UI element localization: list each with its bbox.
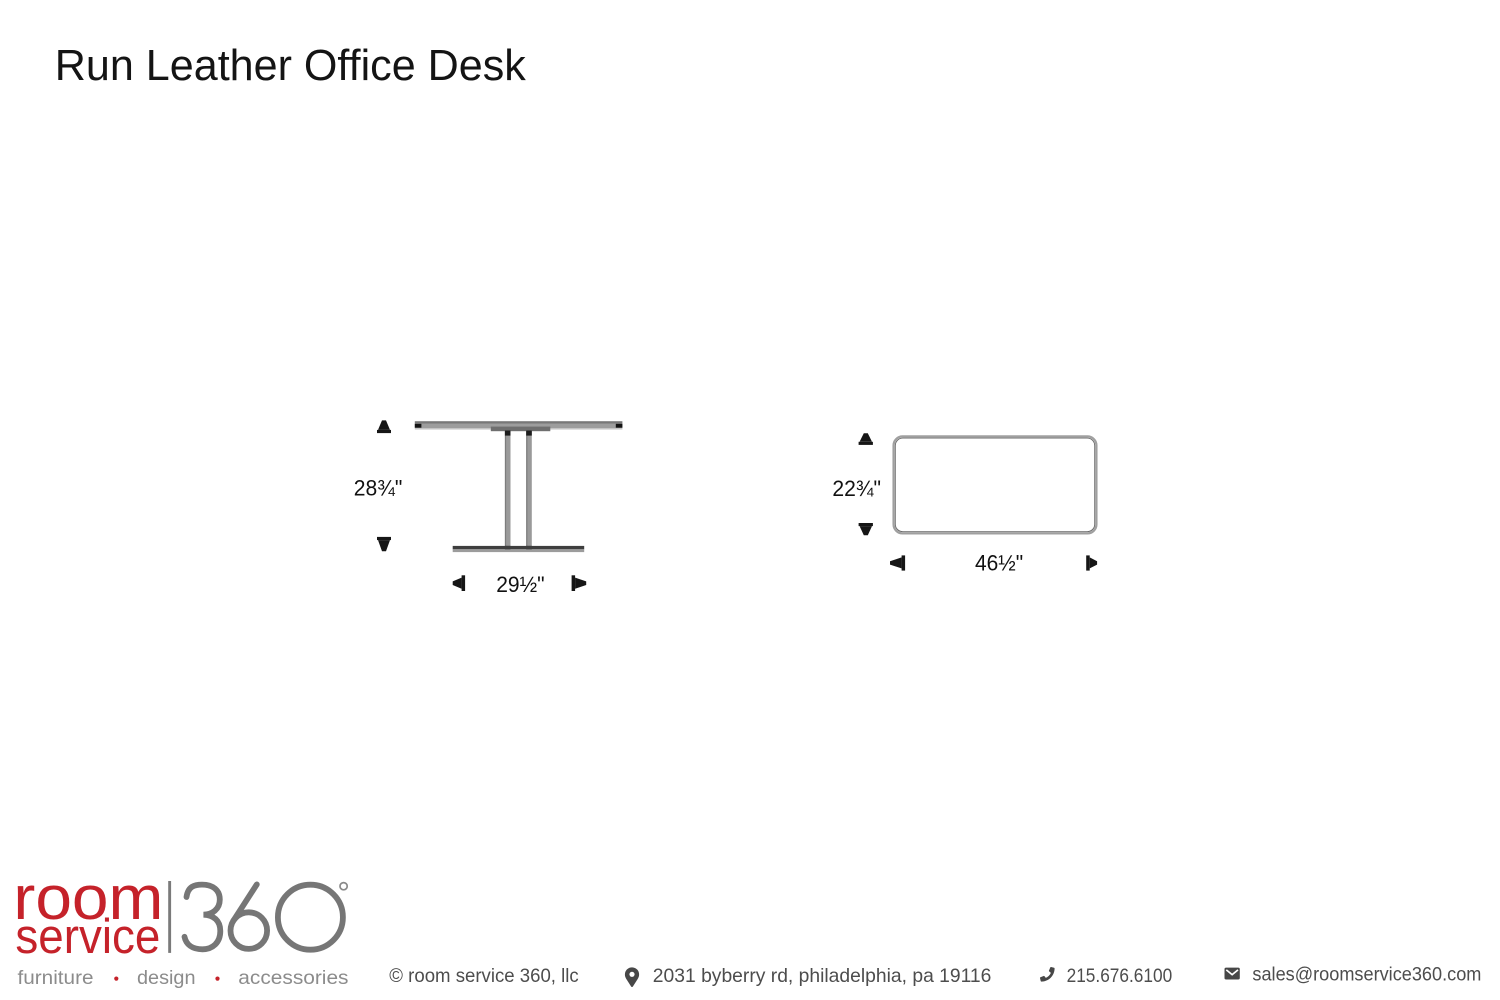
svg-text:furniture: furniture (18, 968, 94, 989)
svg-text:215.676.6100: 215.676.6100 (1067, 965, 1173, 987)
svg-text:22¾": 22¾" (832, 476, 881, 501)
svg-text:service: service (15, 909, 160, 964)
svg-text:design: design (137, 968, 196, 989)
svg-text:sales@roomservice360.com: sales@roomservice360.com (1252, 964, 1481, 986)
svg-text:Run Leather Office Desk: Run Leather Office Desk (55, 41, 527, 90)
svg-text:46½": 46½" (975, 551, 1023, 576)
svg-text:28¾": 28¾" (354, 476, 403, 501)
svg-text:29½": 29½" (496, 572, 544, 597)
svg-text:accessories: accessories (238, 968, 348, 989)
svg-text:© room service 360, llc: © room service 360, llc (389, 965, 579, 987)
svg-text:2031 byberry rd, philadelphia,: 2031 byberry rd, philadelphia, pa 19116 (653, 965, 992, 987)
